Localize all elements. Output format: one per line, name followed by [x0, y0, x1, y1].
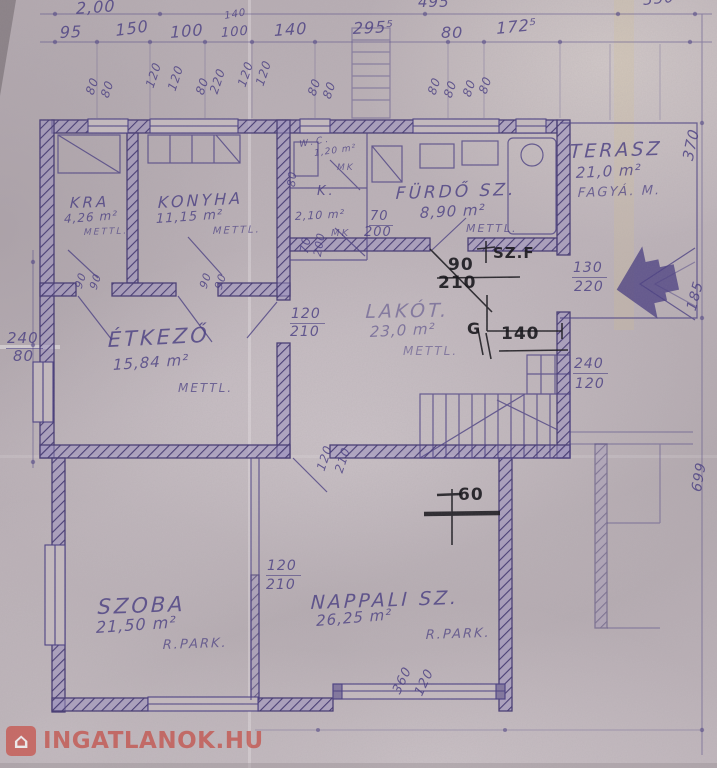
watermark: ⌂ INGATLANOK.HU	[6, 726, 264, 756]
house-icon: ⌂	[6, 726, 36, 756]
watermark-text: INGATLANOK.HU	[43, 728, 264, 754]
floorplan-scan: KRA4,26 m²METTL.KONYHA11,15 m²METTL.W.C.…	[0, 0, 717, 768]
paper-grain-top	[0, 0, 717, 768]
blueprint-linework	[0, 0, 717, 768]
